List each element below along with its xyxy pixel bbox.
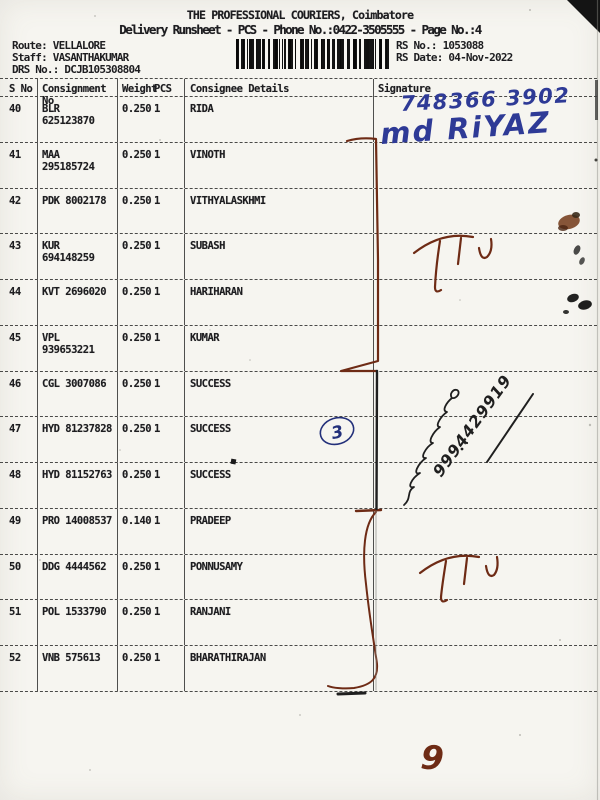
row-pcs: 1 xyxy=(154,103,160,142)
row-consignment-no: VNB 575613 xyxy=(37,646,117,691)
row-signature-cell xyxy=(373,97,597,142)
row-s-no: 49 xyxy=(0,509,37,554)
info-left-block: Route: VELLALORE Staff: VASANTHAKUMAR DR… xyxy=(12,40,140,76)
row-weight-pcs: 0.250 1 xyxy=(117,234,184,279)
runsheet-table: S No Consignment No Weight PCS Consignee… xyxy=(0,78,597,692)
row-weight: 0.250 xyxy=(118,195,154,234)
row-s-no: 46 xyxy=(0,372,37,417)
row-consignee: SUCCESS xyxy=(184,417,373,462)
row-consignment-no: DDG 4444562 xyxy=(37,555,117,600)
table-row: 49 PRO 14008537 0.140 1 PRADEEP xyxy=(0,509,597,555)
table-row: 50 DDG 4444562 0.250 1 PONNUSAMY xyxy=(0,555,597,601)
row-signature-cell xyxy=(373,234,597,279)
row-weight: 0.250 xyxy=(118,423,154,462)
doc-title: THE PROFESSIONAL COURIERS, Coimbatore xyxy=(0,8,600,22)
row-consignee: PONNUSAMY xyxy=(184,555,373,600)
drs-label: DRS No.: xyxy=(12,63,59,76)
row-pcs: 1 xyxy=(154,240,160,279)
row-weight-pcs: 0.250 1 xyxy=(117,189,184,234)
rs-date-line: RS Date: 04-Nov-2022 xyxy=(396,52,512,64)
table-body: 40 BLR 625123870 0.250 1 RIDA 41 MAA 295… xyxy=(0,97,597,692)
row-weight: 0.250 xyxy=(118,149,154,188)
row-signature-cell xyxy=(373,646,597,691)
row-weight-pcs: 0.250 1 xyxy=(117,280,184,325)
row-consignee: KUMAR xyxy=(184,326,373,371)
bottom-foot-mark xyxy=(338,693,365,694)
row-signature-cell xyxy=(373,143,597,188)
row-weight: 0.250 xyxy=(118,378,154,417)
rs-date-value: 04-Nov-2022 xyxy=(448,51,512,64)
table-row: 46 CGL 3007086 0.250 1 SUCCESS xyxy=(0,372,597,418)
row-signature-cell xyxy=(373,509,597,554)
doc-subtitle: Delivery Runsheet - PCS - Phone No.:0422… xyxy=(0,22,600,37)
row-s-no: 41 xyxy=(0,143,37,188)
drs-value: DCJB105308804 xyxy=(64,63,140,76)
staff-label: Staff: xyxy=(12,51,47,64)
row-consignment-no: BLR 625123870 xyxy=(37,97,117,142)
row-consignee: SUBASH xyxy=(184,234,373,279)
row-consignee: SUCCESS xyxy=(184,372,373,417)
row-weight: 0.250 xyxy=(118,561,154,600)
row-signature-cell xyxy=(373,326,597,371)
table-row: 51 POL 1533790 0.250 1 RANJANI xyxy=(0,600,597,646)
row-pcs: 1 xyxy=(154,561,160,600)
row-s-no: 48 xyxy=(0,463,37,508)
scanned-runsheet-page: THE PROFESSIONAL COURIERS, Coimbatore De… xyxy=(0,0,600,800)
row-pcs: 1 xyxy=(154,332,160,371)
row-s-no: 43 xyxy=(0,234,37,279)
row-pcs: 1 xyxy=(154,515,160,554)
row-s-no: 50 xyxy=(0,555,37,600)
row-consignment-no: PDK 8002178 xyxy=(37,189,117,234)
row-weight: 0.250 xyxy=(118,606,154,645)
row-consignee: SUCCESS xyxy=(184,463,373,508)
row-weight: 0.250 xyxy=(118,332,154,371)
row-s-no: 40 xyxy=(0,97,37,142)
row-weight-pcs: 0.250 1 xyxy=(117,326,184,371)
table-row: 43 KUR 694148259 0.250 1 SUBASH xyxy=(0,234,597,280)
row-consignment-no: POL 1533790 xyxy=(37,600,117,645)
info-right-block: RS No.: 1053088 RS Date: 04-Nov-2022 xyxy=(396,40,512,64)
row-signature-cell xyxy=(373,463,597,508)
row-weight-pcs: 0.250 1 xyxy=(117,600,184,645)
row-s-no: 42 xyxy=(0,189,37,234)
row-consignee: RIDA xyxy=(184,97,373,142)
row-signature-cell xyxy=(373,417,597,462)
row-consignee: PRADEEP xyxy=(184,509,373,554)
row-signature-cell xyxy=(373,600,597,645)
table-row: 41 MAA 295185724 0.250 1 VINOTH xyxy=(0,143,597,189)
row-s-no: 47 xyxy=(0,417,37,462)
row-consignment-no: CGL 3007086 xyxy=(37,372,117,417)
table-row: 48 HYD 81152763 0.250 1 SUCCESS xyxy=(0,463,597,509)
row-weight-pcs: 0.250 1 xyxy=(117,372,184,417)
row-pcs: 1 xyxy=(154,469,160,508)
row-pcs: 1 xyxy=(154,286,160,325)
row-consignee: VINOTH xyxy=(184,143,373,188)
table-row: 47 HYD 81237828 0.250 1 SUCCESS xyxy=(0,417,597,463)
rs-no-label: RS No.: xyxy=(396,39,437,52)
row-weight: 0.250 xyxy=(118,286,154,325)
row-pcs: 1 xyxy=(154,378,160,417)
row-weight-pcs: 0.140 1 xyxy=(117,509,184,554)
table-row: 52 VNB 575613 0.250 1 BHARATHIRAJAN xyxy=(0,646,597,692)
table-row: 40 BLR 625123870 0.250 1 RIDA xyxy=(0,97,597,143)
staff-line: Staff: VASANTHAKUMAR xyxy=(12,52,140,64)
row-consignee: BHARATHIRAJAN xyxy=(184,646,373,691)
row-weight-pcs: 0.250 1 xyxy=(117,143,184,188)
row-consignee: RANJANI xyxy=(184,600,373,645)
row-signature-cell xyxy=(373,189,597,234)
row-consignment-no: KVT 2696020 xyxy=(37,280,117,325)
row-pcs: 1 xyxy=(154,652,160,691)
rs-date-label: RS Date: xyxy=(396,51,443,64)
row-consignment-no: HYD 81237828 xyxy=(37,417,117,462)
barcode xyxy=(236,39,389,69)
row-weight-pcs: 0.250 1 xyxy=(117,555,184,600)
staff-value: VASANTHAKUMAR xyxy=(53,51,129,64)
row-signature-cell xyxy=(373,280,597,325)
table-header-row: S No Consignment No Weight PCS Consignee… xyxy=(0,78,597,97)
row-pcs: 1 xyxy=(154,149,160,188)
row-weight-pcs: 0.250 1 xyxy=(117,97,184,142)
row-weight: 0.250 xyxy=(118,469,154,508)
row-s-no: 45 xyxy=(0,326,37,371)
row-weight: 0.250 xyxy=(118,103,154,142)
drs-line: DRS No.: DCJB105308804 xyxy=(12,64,140,76)
row-weight: 0.140 xyxy=(118,515,154,554)
row-consignee: HARIHARAN xyxy=(184,280,373,325)
row-signature-cell xyxy=(373,372,597,417)
row-weight: 0.250 xyxy=(118,240,154,279)
row-consignment-no: PRO 14008537 xyxy=(37,509,117,554)
row-signature-cell xyxy=(373,555,597,600)
row-s-no: 52 xyxy=(0,646,37,691)
row-pcs: 1 xyxy=(154,606,160,645)
row-pcs: 1 xyxy=(154,195,160,234)
row-consignment-no: HYD 81152763 xyxy=(37,463,117,508)
row-s-no: 44 xyxy=(0,280,37,325)
row-s-no: 51 xyxy=(0,600,37,645)
row-weight-pcs: 0.250 1 xyxy=(117,646,184,691)
table-row: 44 KVT 2696020 0.250 1 HARIHARAN xyxy=(0,280,597,326)
table-row: 45 VPL 939653221 0.250 1 KUMAR xyxy=(0,326,597,372)
row-consignment-no: MAA 295185724 xyxy=(37,143,117,188)
row-consignment-no: VPL 939653221 xyxy=(37,326,117,371)
row-weight: 0.250 xyxy=(118,652,154,691)
row-weight-pcs: 0.250 1 xyxy=(117,463,184,508)
handwritten-page-number: 9 xyxy=(419,737,445,778)
row-consignee: VITHYALASKHMI xyxy=(184,189,373,234)
row-weight-pcs: 0.250 1 xyxy=(117,417,184,462)
row-pcs: 1 xyxy=(154,423,160,462)
row-consignment-no: KUR 694148259 xyxy=(37,234,117,279)
table-row: 42 PDK 8002178 0.250 1 VITHYALASKHMI xyxy=(0,189,597,235)
rs-no-value: 1053088 xyxy=(443,39,484,52)
